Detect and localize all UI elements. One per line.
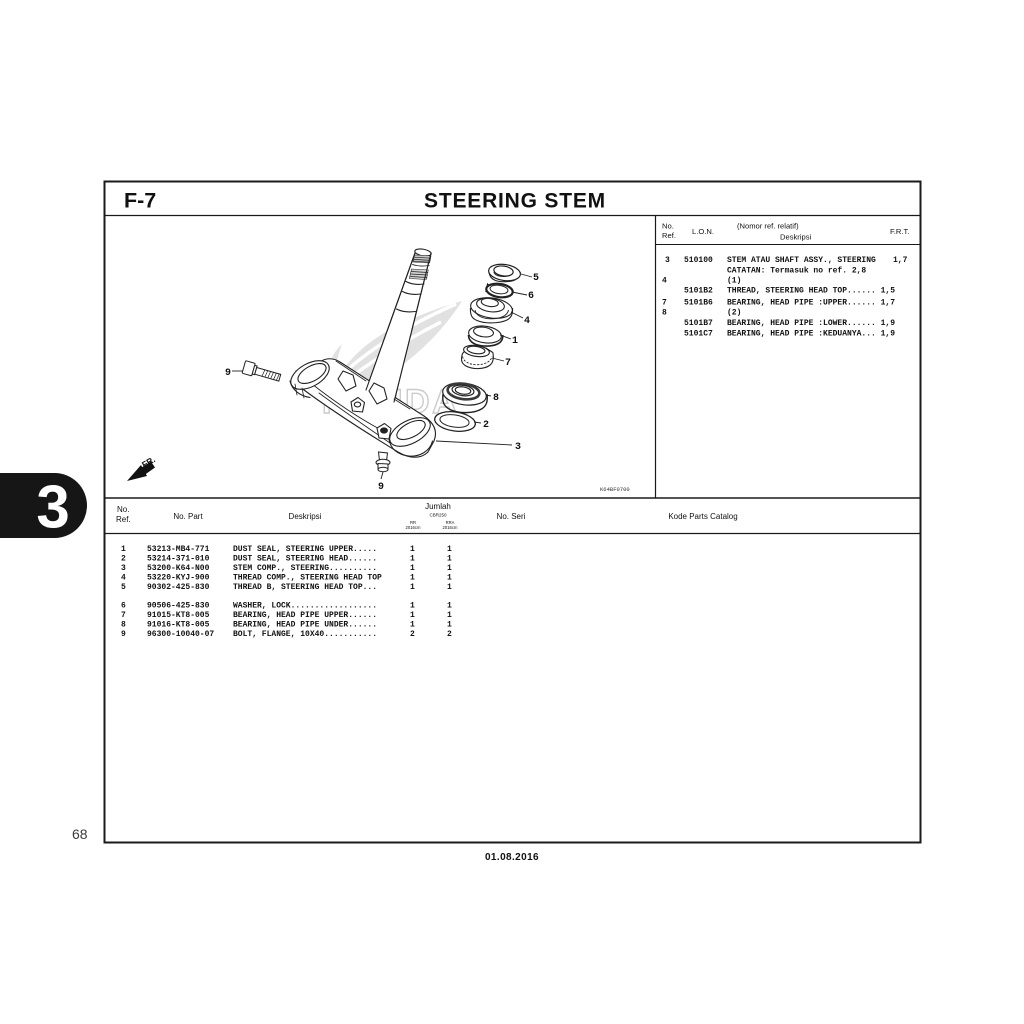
svg-text:DUST SEAL, STEERING UPPER.....: DUST SEAL, STEERING UPPER..... (233, 545, 377, 554)
svg-text:53213-MB4-771: 53213-MB4-771 (147, 545, 210, 554)
svg-text:Deskripsi: Deskripsi (780, 233, 812, 242)
svg-text:90302-425-830: 90302-425-830 (147, 583, 210, 592)
svg-text:F-7: F-7 (124, 189, 156, 213)
svg-text:1: 1 (410, 545, 415, 554)
svg-text:1: 1 (447, 555, 452, 564)
svg-text:2016cm: 2016cm (406, 525, 421, 530)
svg-text:1: 1 (410, 583, 415, 592)
svg-text:Ref.: Ref. (116, 515, 131, 524)
svg-text:7: 7 (121, 611, 126, 620)
svg-text:7: 7 (505, 358, 511, 369)
svg-text:53214-371-010: 53214-371-010 (147, 555, 210, 564)
svg-text:WASHER, LOCK..................: WASHER, LOCK.................. (233, 602, 377, 611)
svg-text:1: 1 (447, 583, 452, 592)
svg-text:(Nomor ref. relatif): (Nomor ref. relatif) (737, 222, 799, 231)
svg-text:THREAD COMP., STEERING HEAD TO: THREAD COMP., STEERING HEAD TOP (233, 574, 382, 583)
svg-text:No.: No. (662, 222, 674, 231)
svg-text:510100: 510100 (684, 256, 713, 265)
svg-text:1: 1 (410, 555, 415, 564)
svg-text:BEARING, HEAD PIPE :KEDUANYA..: BEARING, HEAD PIPE :KEDUANYA... 1,9 (727, 330, 895, 339)
svg-text:THREAD B, STEERING HEAD TOP...: THREAD B, STEERING HEAD TOP... (233, 583, 377, 592)
svg-text:91016-KT8-005: 91016-KT8-005 (147, 621, 210, 630)
svg-text:3: 3 (515, 442, 521, 453)
svg-text:Ref.: Ref. (662, 231, 676, 240)
svg-text:1: 1 (447, 602, 452, 611)
svg-text:1: 1 (447, 574, 452, 583)
svg-text:Deskripsi: Deskripsi (289, 512, 322, 521)
svg-text:4: 4 (121, 574, 126, 583)
svg-text:2: 2 (121, 555, 126, 564)
svg-text:5: 5 (533, 273, 539, 284)
svg-text:8: 8 (662, 309, 667, 318)
svg-text:(1): (1) (727, 277, 741, 286)
svg-text:1: 1 (410, 564, 415, 573)
svg-text:3: 3 (121, 564, 126, 573)
svg-text:STEM COMP., STEERING..........: STEM COMP., STEERING.......... (233, 564, 377, 573)
svg-text:1: 1 (447, 564, 452, 573)
svg-text:8: 8 (493, 393, 499, 404)
svg-text:1: 1 (410, 611, 415, 620)
svg-text:L.O.N.: L.O.N. (692, 227, 714, 236)
svg-text:5: 5 (121, 583, 126, 592)
svg-text:Jumlah: Jumlah (425, 502, 451, 511)
svg-text:STEM ATAU SHAFT ASSY., STEERIN: STEM ATAU SHAFT ASSY., STEERING (727, 256, 876, 265)
svg-text:9: 9 (378, 482, 384, 493)
svg-text:1: 1 (447, 545, 452, 554)
svg-text:2: 2 (483, 420, 489, 431)
svg-text:68: 68 (72, 826, 88, 842)
svg-text:CATATAN: Termasuk no ref. 2,8: CATATAN: Termasuk no ref. 2,8 (727, 267, 866, 276)
svg-text:5101C7: 5101C7 (684, 330, 713, 339)
svg-text:5101B7: 5101B7 (684, 319, 713, 328)
svg-text:1,7: 1,7 (893, 256, 908, 265)
svg-text:53220-KYJ-900: 53220-KYJ-900 (147, 574, 210, 583)
svg-text:5101B2: 5101B2 (684, 287, 713, 296)
svg-text:3: 3 (665, 256, 670, 265)
svg-text:6: 6 (121, 602, 126, 611)
svg-text:1: 1 (410, 621, 415, 630)
svg-text:No. Seri: No. Seri (497, 512, 526, 521)
svg-text:96300-10040-07: 96300-10040-07 (147, 630, 214, 639)
svg-text:90506-425-830: 90506-425-830 (147, 602, 210, 611)
svg-text:BEARING, HEAD PIPE UPPER......: BEARING, HEAD PIPE UPPER...... (233, 611, 377, 620)
svg-text:2: 2 (447, 630, 452, 639)
svg-text:91015-KT8-005: 91015-KT8-005 (147, 611, 210, 620)
svg-text:4: 4 (524, 316, 530, 327)
svg-text:THREAD, STEERING HEAD TOP.....: THREAD, STEERING HEAD TOP...... 1,5 (727, 287, 895, 296)
svg-text:CBR250: CBR250 (429, 513, 447, 518)
svg-text:1: 1 (410, 602, 415, 611)
svg-text:5101B6: 5101B6 (684, 299, 713, 308)
svg-text:8: 8 (121, 621, 126, 630)
svg-text:3: 3 (36, 474, 69, 541)
svg-text:No.: No. (117, 505, 129, 514)
svg-text:2016cm: 2016cm (443, 525, 458, 530)
svg-text:F.R.T.: F.R.T. (890, 227, 909, 236)
svg-text:(2): (2) (727, 309, 741, 318)
svg-text:1: 1 (447, 611, 452, 620)
svg-text:1: 1 (410, 574, 415, 583)
svg-text:1: 1 (512, 336, 518, 347)
svg-text:53200-K64-N00: 53200-K64-N00 (147, 564, 210, 573)
svg-text:BEARING, HEAD PIPE :LOWER.....: BEARING, HEAD PIPE :LOWER...... 1,9 (727, 319, 895, 328)
svg-text:BEARING, HEAD PIPE UNDER......: BEARING, HEAD PIPE UNDER...... (233, 621, 377, 630)
svg-text:9: 9 (225, 368, 231, 379)
svg-text:4: 4 (662, 277, 667, 286)
svg-text:DUST SEAL, STEERING HEAD......: DUST SEAL, STEERING HEAD...... (233, 555, 377, 564)
svg-text:BEARING, HEAD PIPE :UPPER.....: BEARING, HEAD PIPE :UPPER...... 1,7 (727, 299, 895, 308)
svg-text:No. Part: No. Part (173, 512, 203, 521)
svg-text:6: 6 (528, 291, 534, 302)
svg-text:K64BF0700: K64BF0700 (600, 486, 630, 493)
svg-text:1: 1 (447, 621, 452, 630)
svg-text:1: 1 (121, 545, 126, 554)
svg-text:STEERING STEM: STEERING STEM (424, 190, 606, 213)
svg-text:Kode Parts Catalog: Kode Parts Catalog (668, 512, 737, 521)
svg-text:2: 2 (410, 630, 415, 639)
svg-text:9: 9 (121, 630, 126, 639)
svg-text:7: 7 (662, 299, 667, 308)
svg-text:BOLT, FLANGE, 10X40...........: BOLT, FLANGE, 10X40........... (233, 630, 377, 639)
svg-text:01.08.2016: 01.08.2016 (485, 852, 539, 863)
